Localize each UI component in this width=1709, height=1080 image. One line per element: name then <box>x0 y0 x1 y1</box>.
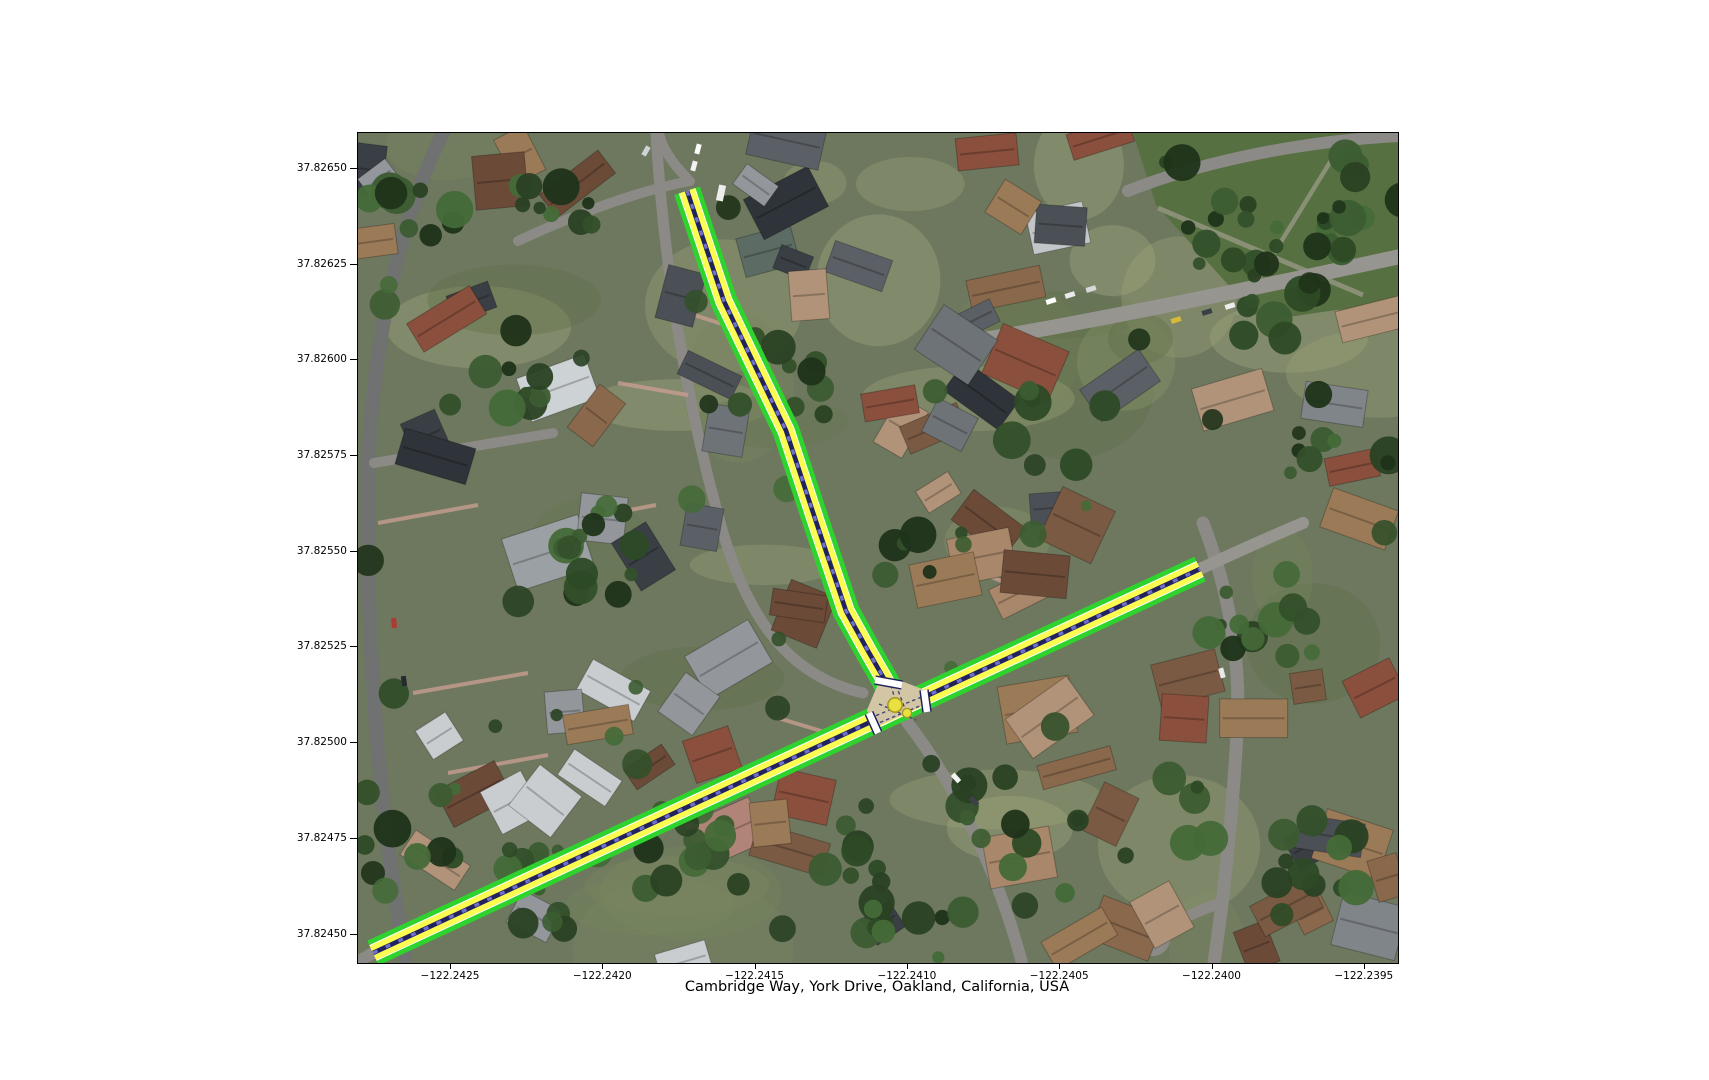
x-axis-tick-mark <box>602 963 603 969</box>
x-axis-tick-mark <box>1364 963 1365 969</box>
y-axis-tick-mark <box>350 934 357 935</box>
y-axis-tick-label: 37.82550 <box>277 545 347 557</box>
x-axis-tick-mark <box>1059 963 1060 969</box>
x-axis-tick-label: −122.2395 <box>1334 970 1393 982</box>
x-axis-tick-mark <box>907 963 908 969</box>
plot-area <box>357 132 1399 964</box>
x-axis-tick-label: −122.2420 <box>573 970 632 982</box>
y-axis-tick-label: 37.82500 <box>277 736 347 748</box>
x-axis-tick-mark <box>450 963 451 969</box>
y-axis-tick-mark <box>350 742 357 743</box>
y-axis-tick-label: 37.82575 <box>277 449 347 461</box>
y-axis-tick-label: 37.82450 <box>277 928 347 940</box>
y-axis-tick-mark <box>350 168 357 169</box>
y-axis-tick-label: 37.82650 <box>277 162 347 174</box>
intersection-node <box>902 708 911 717</box>
figure-title: Cambridge Way, York Drive, Oakland, Cali… <box>685 979 1069 995</box>
y-axis-tick-mark <box>350 838 357 839</box>
y-axis-tick-label: 37.82475 <box>277 832 347 844</box>
y-axis-tick-mark <box>350 264 357 265</box>
y-axis-tick-mark <box>350 646 357 647</box>
y-axis-tick-mark <box>350 455 357 456</box>
intersection-node <box>888 698 902 712</box>
y-axis-tick-mark <box>350 359 357 360</box>
y-axis-tick-label: 37.82625 <box>277 258 347 270</box>
aerial-map <box>358 133 1398 963</box>
crosswalk-bar-east <box>924 690 927 712</box>
y-axis-tick-label: 37.82525 <box>277 640 347 652</box>
figure-canvas: 37.8265037.8262537.8260037.8257537.82550… <box>0 0 1709 1080</box>
x-axis-tick-mark <box>1212 963 1213 969</box>
x-axis-tick-label: −122.2425 <box>421 970 480 982</box>
y-axis-tick-mark <box>350 551 357 552</box>
x-axis-tick-label: −122.2400 <box>1182 970 1241 982</box>
y-axis-tick-label: 37.82600 <box>277 353 347 365</box>
x-axis-tick-mark <box>755 963 756 969</box>
